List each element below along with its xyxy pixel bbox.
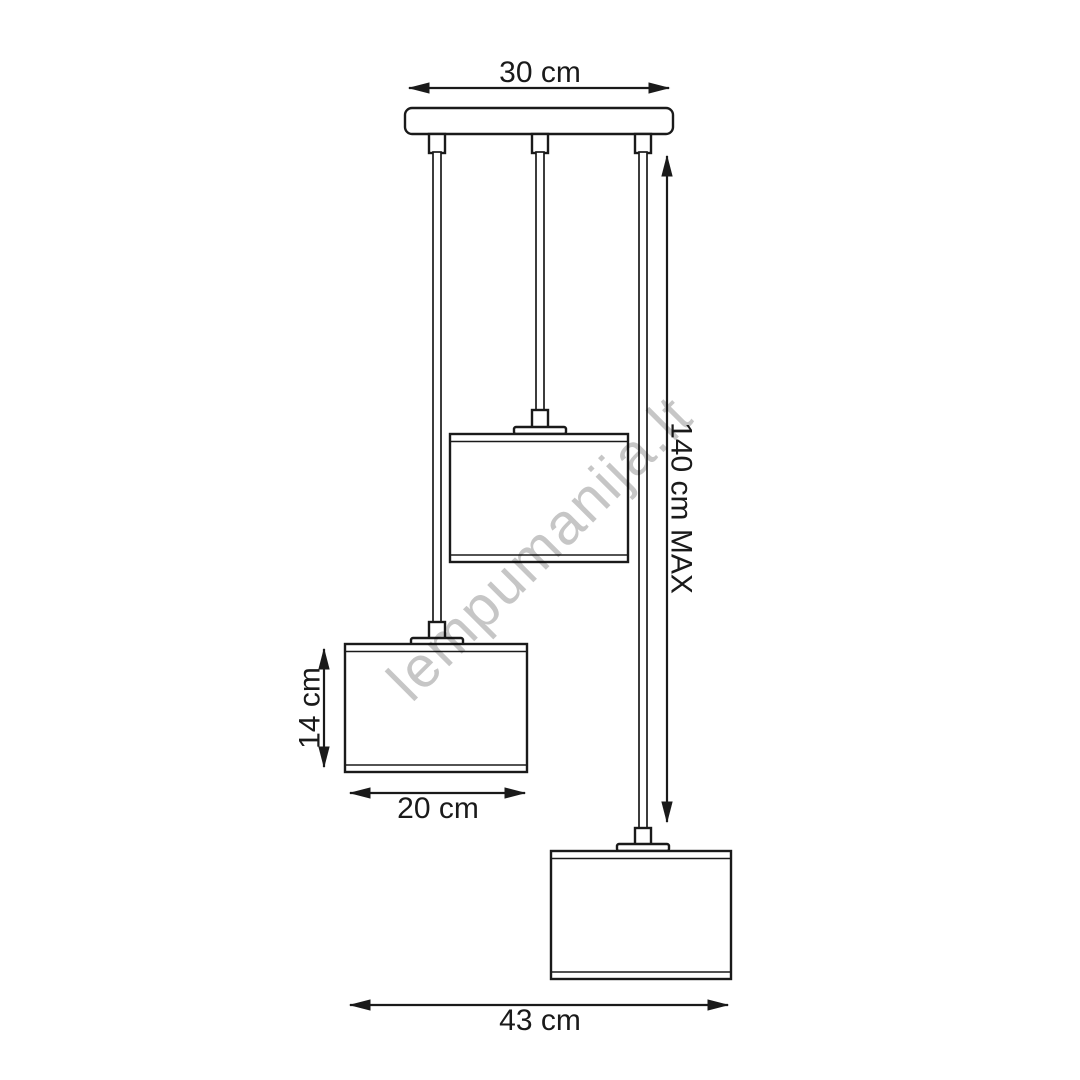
ceiling-canopy (405, 108, 673, 134)
cord-grip-left (429, 134, 445, 153)
cord-grip-middle (532, 134, 548, 153)
cord-grip-right (635, 134, 651, 153)
dimension-label-overall-width: 43 cm (499, 1004, 581, 1037)
dimension-label-shade-width: 20 cm (397, 792, 479, 825)
dimension-label-shade-height: 14 cm (294, 667, 327, 749)
cord-middle (536, 152, 544, 411)
pendant-lamp-dimension-diagram: 30 cm 140 cm MAX 14 cm 20 cm 43 cm lempu… (0, 0, 1080, 1080)
diagram-drawing: 30 cm 140 cm MAX 14 cm 20 cm 43 cm lempu… (0, 0, 1080, 1080)
shade-right (551, 851, 731, 979)
dimension-label-canopy-width: 30 cm (499, 56, 581, 89)
cord-left (433, 152, 441, 623)
